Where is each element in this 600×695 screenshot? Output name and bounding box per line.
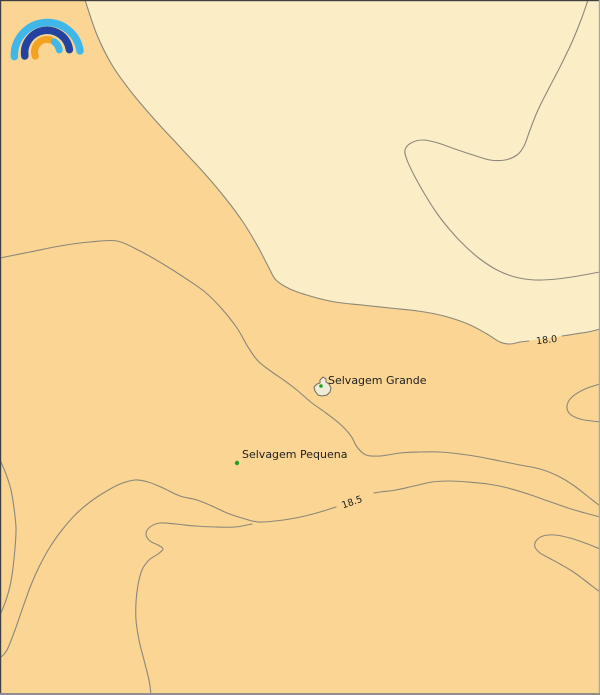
island-label-selvagem-pequena: Selvagem Pequena — [242, 448, 347, 461]
island-label-selvagem-grande: Selvagem Grande — [328, 374, 427, 387]
frame-border-top — [0, 0, 600, 1]
map-canvas: Selvagem Grande Selvagem Pequena 18.0 18… — [0, 0, 600, 695]
sea-temperature-map: Selvagem Grande Selvagem Pequena 18.0 18… — [0, 0, 600, 695]
station-dot-selvagem-grande — [319, 384, 323, 388]
station-dot-selvagem-pequena — [235, 461, 239, 465]
frame-border-left — [0, 0, 1, 695]
